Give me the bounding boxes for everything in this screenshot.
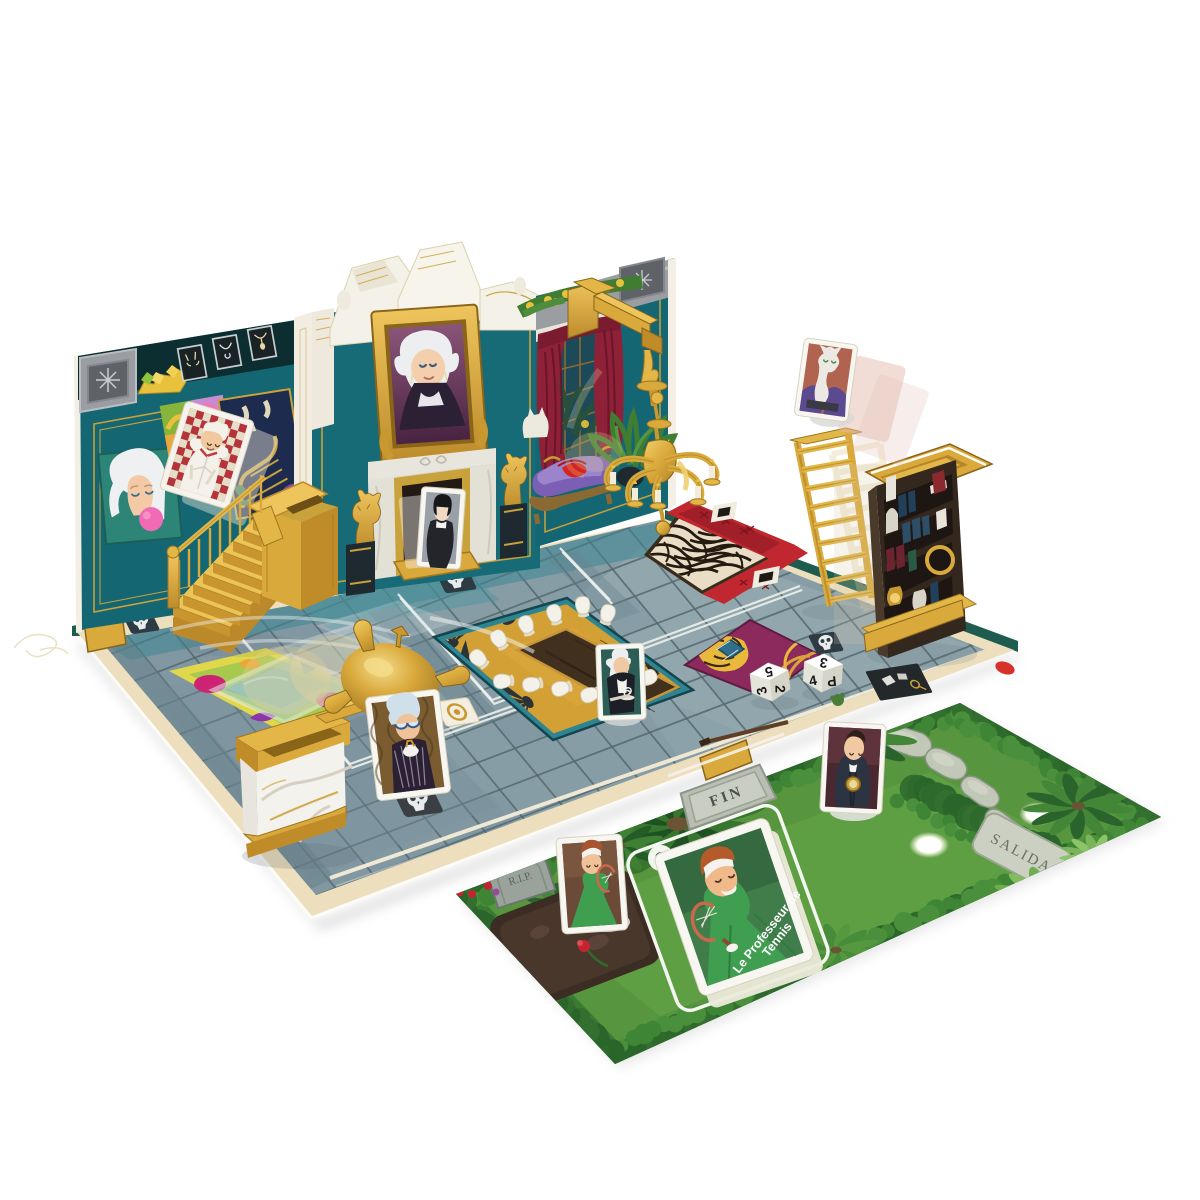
svg-text:2: 2 <box>772 685 788 693</box>
svg-text:P: P <box>826 673 837 690</box>
